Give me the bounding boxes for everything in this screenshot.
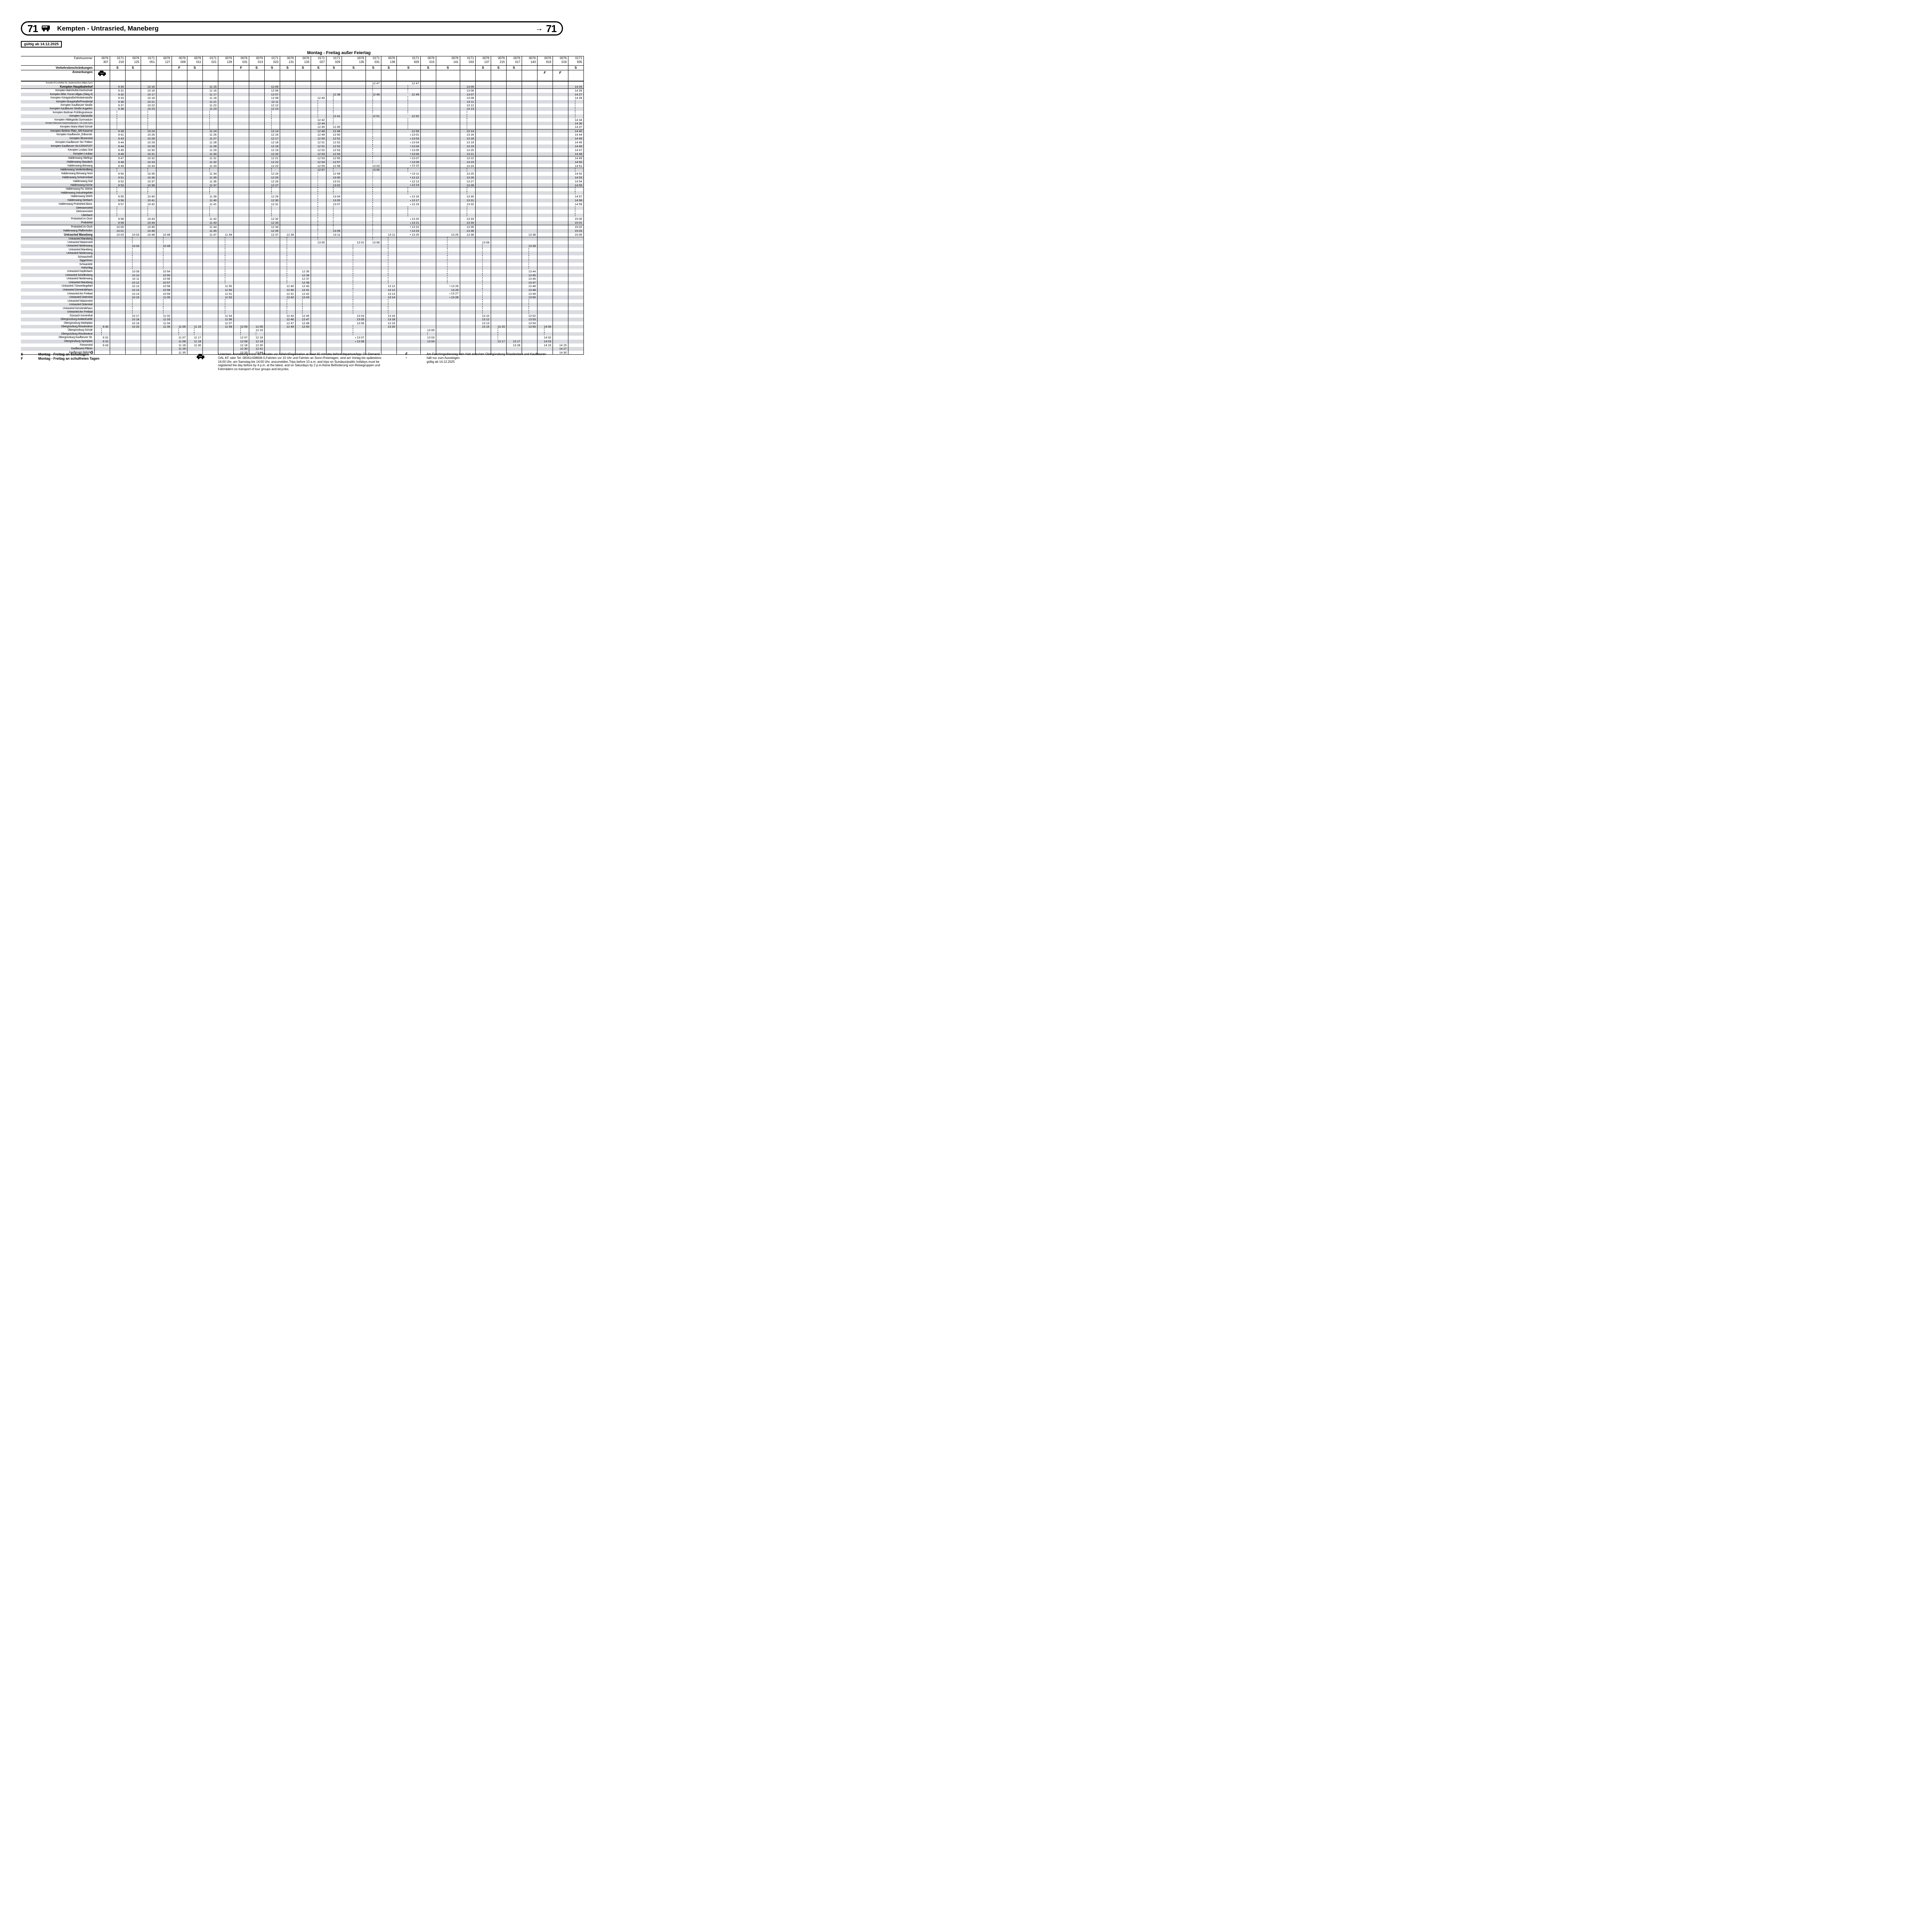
restriction-code-cell [141,66,156,70]
time-cell [326,288,342,292]
time-cell [202,340,218,343]
time-cell [202,336,218,340]
time-cell: 10 09 [125,270,141,273]
exit-only-icon: ◖ [355,337,357,339]
time-cell [187,281,202,284]
time-cell [280,244,295,248]
time-cell [396,296,420,299]
time-cell [475,303,491,306]
time-cell [125,347,141,350]
time-cell [366,107,381,110]
time-cell: 10 23 [141,107,156,110]
route-continues-wavy-line [163,266,164,270]
time-cell [396,336,420,340]
time-cell [311,343,326,347]
time-cell [295,111,311,114]
time-cell [553,244,568,248]
time-cell [342,195,366,199]
time-cell [156,187,172,191]
time-cell: 12 41 [326,114,342,118]
time-cell [326,221,342,225]
time-cell: 11 43 [202,221,218,225]
time-cell: 12 49 [396,93,420,96]
time-cell [366,89,381,93]
time-cell [420,310,436,314]
time-cell: 12 30 [264,199,280,202]
time-cell [396,85,420,89]
time-cell [94,266,110,270]
time-cell [366,296,381,299]
time-cell [366,299,381,303]
time-cell: 9 57 [110,202,125,206]
route-continues-wavy-line [132,299,133,303]
time-cell [311,107,326,110]
time-cell: 12 12 [264,104,280,107]
time-cell [218,270,233,273]
time-cell [506,217,522,221]
time-cell [264,332,280,336]
time-cell [94,176,110,180]
time-cell [125,255,141,259]
time-cell: 13 48 [522,284,537,288]
route-continues-wavy-line [148,118,148,122]
time-cell [187,168,202,172]
time-cell [366,336,381,340]
time-cell: 15 05 [568,233,583,237]
time-cell [233,233,249,237]
time-cell [342,274,366,277]
time-cell [342,122,366,125]
time-cell [233,221,249,225]
time-cell: 13 38 [522,233,537,237]
time-cell [436,199,460,202]
time-cell: ◖13 12 [396,176,420,180]
time-cell [537,96,553,100]
time-cell [491,122,506,125]
route-continues-wavy-line [372,137,373,140]
station-name-cell: Haldenwang Süd [21,180,94,184]
time-cell: 11 00 [156,296,172,299]
time-cell [156,104,172,107]
time-cell [233,281,249,284]
time-cell [326,248,342,252]
time-cell [475,81,491,85]
time-cell [218,241,233,244]
time-cell [218,148,233,152]
route-continues-wavy-line [318,180,318,183]
time-cell: 10 58 [156,284,172,288]
time-cell [537,277,553,280]
route-continues-wavy-line [529,307,529,310]
route-continues-wavy-line [209,118,210,122]
time-cell [141,266,156,270]
route-continues-wavy-line [302,303,303,306]
time-cell [125,144,141,148]
route-continues-wavy-line [225,299,226,303]
time-cell [475,274,491,277]
restriction-code-cell: S [396,66,420,70]
time-cell [233,202,249,206]
route-continues-wavy-line [225,281,226,284]
time-cell: 12 05 [264,85,280,89]
time-cell [475,244,491,248]
time-cell [475,111,491,114]
note-cell [460,70,475,81]
time-cell [94,160,110,164]
time-cell [342,284,366,288]
time-cell [475,160,491,164]
route-continues-wavy-line [388,259,389,262]
time-cell [94,202,110,206]
time-cell: 13 07 [460,93,475,96]
time-cell [311,318,326,321]
time-cell [94,229,110,233]
time-cell [491,347,506,350]
time-cell [172,125,187,129]
time-cell [396,237,420,241]
route-continues-wavy-line [318,202,318,206]
time-cell [156,85,172,89]
time-cell [568,187,583,191]
route-continues-wavy-line [194,328,195,332]
route-continues-wavy-line [240,328,241,332]
time-cell [396,206,420,210]
time-cell [187,233,202,237]
time-cell [94,214,110,217]
time-cell: 11 52 [218,296,233,299]
time-cell [172,195,187,199]
station-name-cell: Haldenwang Probstried Abzw. [21,202,94,206]
time-cell [436,183,460,187]
time-cell [342,225,366,229]
trip-number-cell: 0171051 [141,56,156,66]
time-cell [233,307,249,310]
time-cell [218,111,233,114]
time-cell [396,187,420,191]
time-cell [110,328,125,332]
time-cell [156,195,172,199]
route-continues-wavy-line [482,284,483,288]
time-cell [522,248,537,252]
time-cell [553,176,568,180]
trip-number-cell: 0076133 [295,56,311,66]
time-cell [436,85,460,89]
time-cell [537,164,553,168]
route-continues-wavy-line [529,303,529,306]
station-name-cell: Obergünzburg Sportplatz [21,340,94,343]
time-cell [522,259,537,262]
time-cell [110,332,125,336]
time-cell [233,225,249,229]
route-header-bar: 71 Kempten - Untrasried, Maneberg → 71 [21,21,563,36]
time-cell [264,248,280,252]
time-cell [202,168,218,172]
time-cell [420,202,436,206]
time-cell [311,176,326,180]
time-cell [172,281,187,284]
time-cell [522,107,537,110]
time-cell: 15 01 [568,221,583,225]
time-cell [326,225,342,229]
timetable-row: Überbach [21,214,583,217]
time-cell [156,241,172,244]
time-cell [381,187,396,191]
time-cell [366,96,381,100]
route-continues-wavy-line [408,107,408,110]
time-cell [326,321,342,325]
time-cell [280,255,295,259]
time-cell [202,274,218,277]
time-cell [420,111,436,114]
time-cell [311,270,326,273]
time-cell [326,266,342,270]
exit-only-icon: ◖ [410,157,412,160]
time-cell [506,332,522,336]
timetable-row: Kempten Adenauerr.Haubensteigweg (C. von… [21,122,583,125]
time-cell [233,241,249,244]
time-cell [396,241,420,244]
time-cell [436,156,460,160]
time-cell [396,274,420,277]
timetable-row: Haldenwang Börwang9 4910 3411 3312 2312 … [21,164,583,168]
time-cell: 10 46 [141,229,156,233]
time-cell [381,191,396,195]
time-cell [311,237,326,241]
time-cell [233,263,249,266]
route-continues-wavy-line [388,241,389,244]
linientaxi-note-text: Linientaxi: Anmeldung mind. 60 Minuten v… [218,352,384,371]
time-cell: 12 32 [264,217,280,221]
time-cell: 11 18 [172,343,187,347]
time-cell [187,225,202,229]
route-continues-wavy-line [287,263,287,266]
route-continues-wavy-line [318,225,318,229]
time-cell [249,255,264,259]
time-cell [218,303,233,306]
time-cell [537,296,553,299]
time-cell: ◖13 11 [396,172,420,176]
time-cell [420,156,436,160]
trip-number-cell: 0171935 [568,56,583,66]
time-cell: 12 23 [264,164,280,168]
time-cell: 12 17 [264,137,280,141]
time-cell [110,318,125,321]
time-cell [172,164,187,168]
time-cell [537,266,553,270]
time-cell [218,172,233,176]
time-cell [491,199,506,202]
time-cell [202,332,218,336]
note-cell [366,70,381,81]
time-cell [110,187,125,191]
route-continues-wavy-line [318,233,318,236]
time-cell [436,266,460,270]
time-cell [264,237,280,241]
time-cell [568,248,583,252]
time-cell [295,340,311,343]
time-cell [141,310,156,314]
time-cell [125,168,141,172]
time-cell: 10 48 [156,233,172,237]
time-cell: 15 02 [568,225,583,229]
time-cell [475,233,491,237]
time-cell [311,85,326,89]
time-cell [249,100,264,104]
time-cell: 11 36 [202,180,218,184]
time-cell: 13 36 [460,229,475,233]
time-cell [218,107,233,110]
time-cell [506,148,522,152]
time-cell [233,277,249,280]
time-cell [156,137,172,141]
time-cell [436,129,460,133]
time-cell: 13 45 [522,274,537,277]
time-cell [436,281,460,284]
time-cell [522,328,537,332]
route-continues-wavy-line [333,168,334,172]
time-cell [522,347,537,350]
time-cell [110,292,125,296]
route-continues-wavy-line [209,210,210,213]
time-cell [342,187,366,191]
time-cell [366,122,381,125]
time-cell [156,217,172,221]
time-cell [218,340,233,343]
station-name-cell: Dietmannsried [21,210,94,213]
time-cell: 14 15 [537,343,553,347]
time-cell: 12 46 [280,318,295,321]
time-cell: 12 29 [264,195,280,199]
time-cell: 9 41 [110,133,125,137]
time-cell [202,307,218,310]
route-continues-wavy-line [372,96,373,100]
time-cell [172,152,187,156]
time-cell: 12 52 [311,148,326,152]
time-cell [522,214,537,217]
time-cell [125,221,141,225]
time-cell: 13 11 [460,100,475,104]
time-cell [420,104,436,107]
time-cell: 13 25 [436,233,460,237]
time-cell: 13 12 [381,284,396,288]
route-continues-wavy-line [302,310,303,314]
time-cell: 13 38 [460,233,475,237]
time-cell: 12 43 [295,296,311,299]
route-continues-wavy-line [132,263,133,266]
time-cell [280,148,295,152]
time-cell: 14 57 [568,195,583,199]
time-cell [172,277,187,280]
timetable-row: Obergünzburg Araltankstelle10 1811 0311 … [21,318,583,321]
time-cell [125,328,141,332]
time-cell [156,343,172,347]
time-cell [202,81,218,85]
time-cell [436,248,460,252]
time-cell [522,129,537,133]
route-continues-wavy-line [372,176,373,179]
time-cell [233,292,249,296]
time-cell [506,233,522,237]
time-cell [396,210,420,213]
time-cell [249,104,264,107]
time-cell [420,217,436,221]
route-continues-wavy-line [179,328,179,332]
time-cell [156,172,172,176]
time-cell [172,81,187,85]
time-cell [110,252,125,255]
time-cell [187,156,202,160]
time-cell [156,332,172,336]
time-cell [475,96,491,100]
time-cell: 11 22 [202,104,218,107]
time-cell [491,176,506,180]
time-cell [311,199,326,202]
time-cell [202,321,218,325]
time-cell [110,277,125,280]
symbol-legend-row: ◖hält nur zum Aussteigen [405,356,585,360]
timetable-row: Haldenwang Pfaffenhofen10 0110 4611 4512… [21,229,583,233]
time-cell: 10 17 [141,93,156,96]
time-cell [522,141,537,144]
time-cell [568,244,583,248]
time-cell [342,85,366,89]
time-cell [233,96,249,100]
time-cell [366,310,381,314]
time-cell [125,118,141,122]
time-cell [553,125,568,129]
time-cell [475,125,491,129]
time-cell [381,263,396,266]
time-cell [491,125,506,129]
route-continues-wavy-line [353,263,354,266]
time-cell [342,281,366,284]
time-cell [568,332,583,336]
time-cell: 13 34 [460,221,475,225]
time-cell [366,281,381,284]
time-cell: 11 28 [202,141,218,144]
time-cell [264,114,280,118]
time-cell [342,214,366,217]
timetable-row: Probstried im Ösch10 0010 4511 4412 34◖1… [21,225,583,229]
time-cell [436,328,460,332]
time-cell [233,299,249,303]
station-name-cell: Untrasried Gemeindehaus [21,307,94,310]
time-cell [381,206,396,210]
station-name-cell: Kempten Kaufbeurer Str./CERATIZIT [21,144,94,148]
time-cell [94,314,110,318]
time-cell [110,125,125,129]
time-cell [156,183,172,187]
time-cell: 13 12 [381,288,396,292]
time-cell: 12 49 [366,93,381,96]
time-cell [436,206,460,210]
time-cell [420,125,436,129]
route-continues-wavy-line [353,266,354,270]
timetable-row: Untrasried Schellenberg10 1010 5512 3613… [21,274,583,277]
station-name-cell: Kempten Bodman Frühlingsstrasse [21,111,94,114]
time-cell [172,274,187,277]
time-cell [187,248,202,252]
restriction-code-cell: S [568,66,583,70]
time-cell [436,100,460,104]
time-cell [436,118,460,122]
time-cell: 9 43 [110,137,125,141]
time-cell [420,343,436,347]
time-cell [326,244,342,248]
time-cell: ◖13 27 [436,292,460,296]
time-cell [202,318,218,321]
route-continues-wavy-line [388,255,389,259]
